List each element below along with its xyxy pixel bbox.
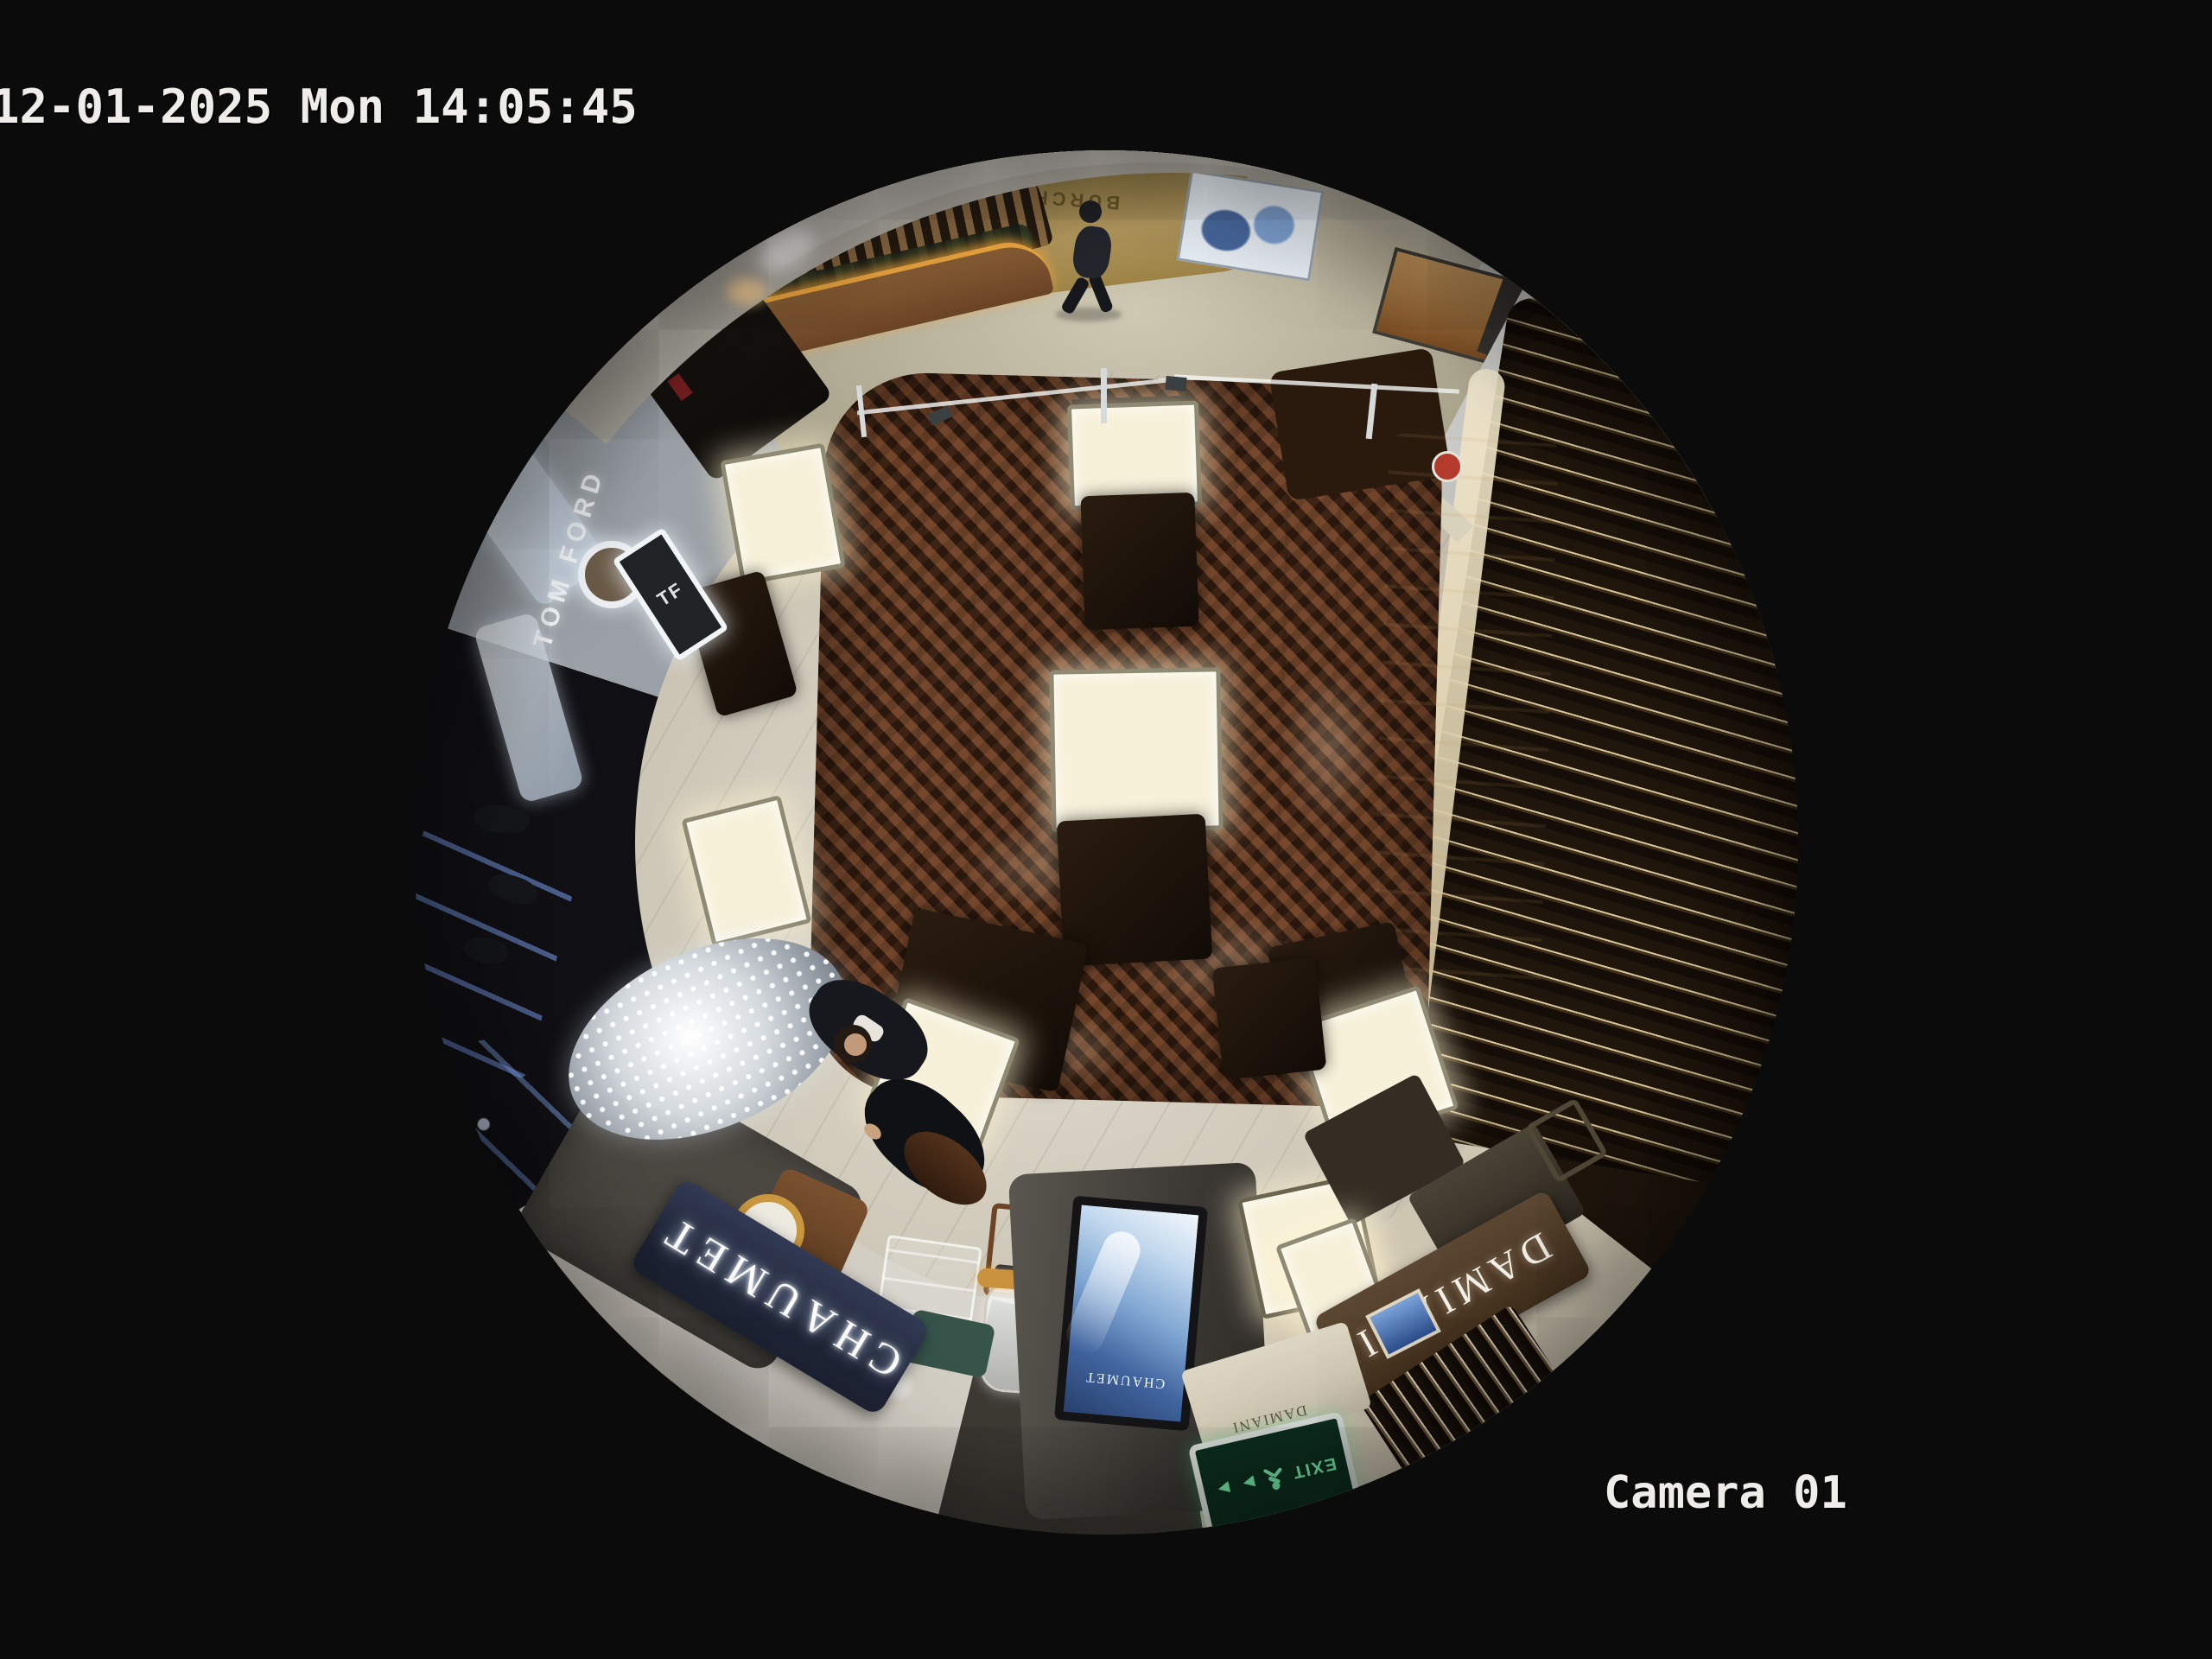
led-flare	[727, 278, 766, 304]
cctv-frame: { "osd": { "timestamp": "12-01-2025 Mon …	[0, 0, 2212, 1659]
display-case-left-a	[720, 443, 845, 586]
fisheye-feed: BURCH	[414, 150, 1798, 1535]
customer-face	[844, 1033, 867, 1056]
case-pedestal	[1080, 493, 1198, 631]
tf-logo-label: TF	[653, 578, 688, 612]
floor-sheen	[1261, 634, 1399, 859]
fire-safety-roundel	[1432, 451, 1463, 482]
balustrade-clamp	[1165, 376, 1186, 391]
timestamp-osd: 12-01-2025 Mon 14:05:45	[0, 79, 638, 134]
exit-label: EXIT	[1289, 1453, 1338, 1483]
case-pedestal	[1212, 957, 1327, 1080]
ad-screen-sparkle	[1060, 1225, 1146, 1359]
wood-cabinet-wall	[1370, 433, 1560, 1008]
exit-arrow-icon: ►	[1237, 1470, 1261, 1496]
exit-arrow-icon: ►	[1212, 1476, 1236, 1502]
balustrade-post	[1101, 368, 1107, 423]
walking-person-head	[1079, 200, 1102, 223]
ad-screen-brand: CHAUMET	[1084, 1369, 1166, 1391]
display-case-center	[1049, 667, 1223, 832]
running-man-icon	[1262, 1462, 1288, 1492]
camera-label-osd: Camera 01	[1604, 1467, 1847, 1519]
ad-screen: CHAUMET	[1054, 1196, 1208, 1432]
